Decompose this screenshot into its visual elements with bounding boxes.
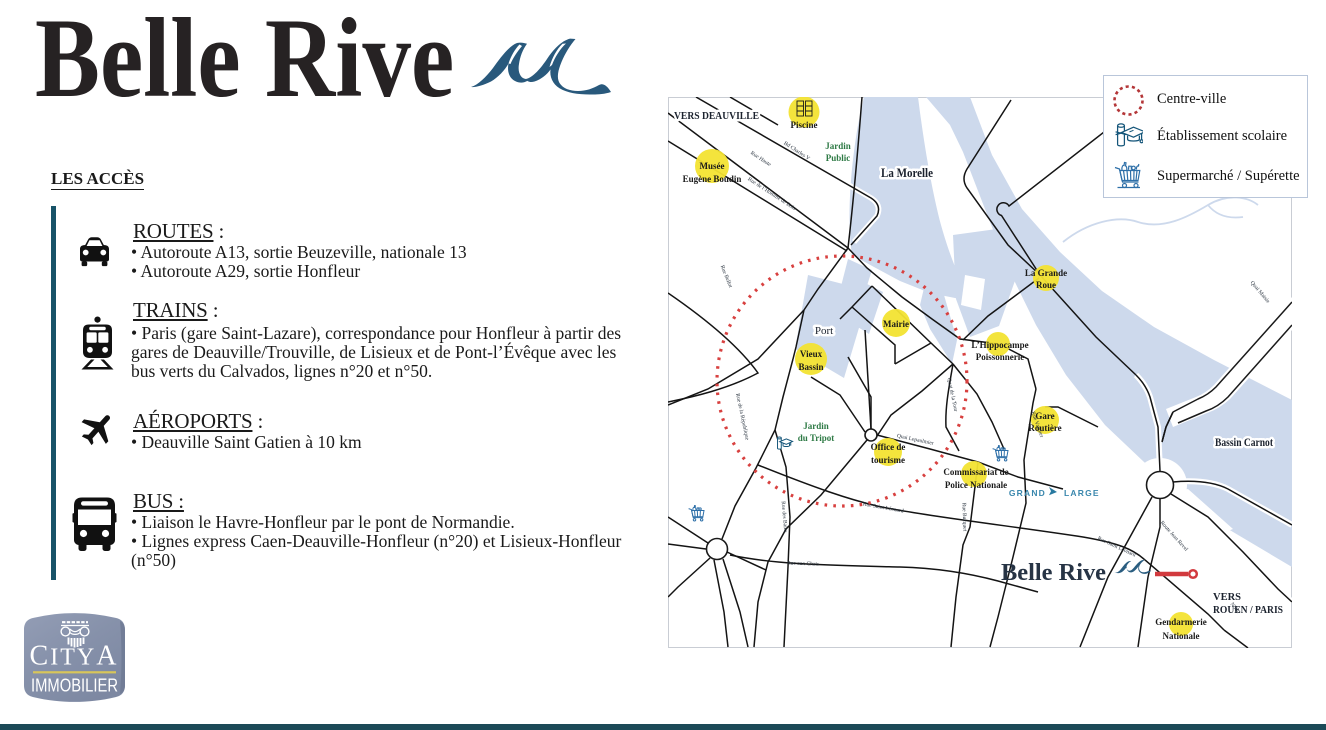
svg-text:Bassin: Bassin	[798, 362, 823, 372]
svg-text:VERS DEAUVILLE: VERS DEAUVILLE	[674, 110, 759, 122]
svg-text:VERS: VERS	[1213, 592, 1241, 603]
svg-text:Roue: Roue	[1036, 280, 1056, 290]
svg-text:GRAND: GRAND	[1009, 488, 1046, 498]
svg-text:du Tripot: du Tripot	[798, 433, 834, 443]
svg-text:Commissariat de: Commissariat de	[943, 467, 1008, 477]
svg-text:Musée: Musée	[700, 161, 725, 171]
svg-text:IMMOBILIER: IMMOBILIER	[31, 676, 118, 696]
svg-text:Bassin Carnot: Bassin Carnot	[1215, 437, 1273, 449]
svg-text:Belle Rive: Belle Rive	[1001, 560, 1106, 586]
svg-text:Rue aux Chats: Rue aux Chats	[787, 560, 819, 567]
svg-text:Jardin: Jardin	[825, 141, 851, 151]
svg-text:CITYA: CITYA	[30, 641, 119, 672]
svg-text:Office de: Office de	[871, 442, 906, 452]
svg-text:Eugène Boudin: Eugène Boudin	[683, 174, 742, 184]
svg-text:ROUEN / PARIS: ROUEN / PARIS	[1213, 605, 1283, 616]
svg-text:Gendarmerie: Gendarmerie	[1155, 617, 1206, 627]
svg-text:Mairie: Mairie	[883, 319, 909, 329]
svg-text:Poissonnerie: Poissonnerie	[976, 352, 1025, 362]
svg-text:tourisme: tourisme	[871, 455, 905, 465]
svg-text:L’Hippocampe: L’Hippocampe	[971, 340, 1028, 350]
svg-text:LARGE: LARGE	[1064, 488, 1100, 498]
svg-text:Nationale: Nationale	[1163, 631, 1200, 641]
svg-text:Public: Public	[826, 153, 851, 163]
svg-text:Routière: Routière	[1028, 423, 1061, 433]
svg-text:Jardin: Jardin	[803, 421, 829, 431]
svg-text:Vieux: Vieux	[800, 349, 823, 359]
svg-text:La Grande: La Grande	[1025, 268, 1067, 278]
svg-text:Rue Bucquet: Rue Bucquet	[961, 503, 968, 532]
svg-text:La Morelle: La Morelle	[881, 165, 933, 180]
svg-text:Police Nationale: Police Nationale	[945, 480, 1007, 490]
svg-text:Piscine: Piscine	[791, 120, 818, 130]
svg-text:Port: Port	[815, 325, 833, 337]
